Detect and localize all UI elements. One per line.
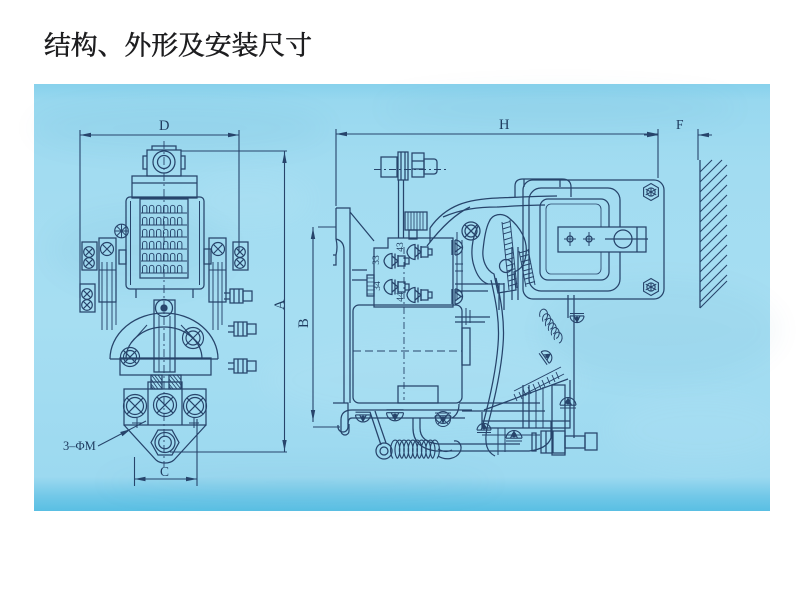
svg-text:B: B	[296, 318, 312, 328]
svg-text:D: D	[159, 118, 169, 134]
svg-text:44: 44	[396, 292, 406, 302]
svg-text:A: A	[272, 299, 288, 310]
svg-text:43: 43	[396, 242, 406, 252]
svg-text:C: C	[160, 464, 169, 479]
svg-text:F: F	[676, 117, 684, 132]
svg-text:H: H	[499, 117, 510, 133]
svg-text:3–ΦM: 3–ΦM	[63, 439, 96, 453]
svg-text:33: 33	[372, 255, 382, 265]
